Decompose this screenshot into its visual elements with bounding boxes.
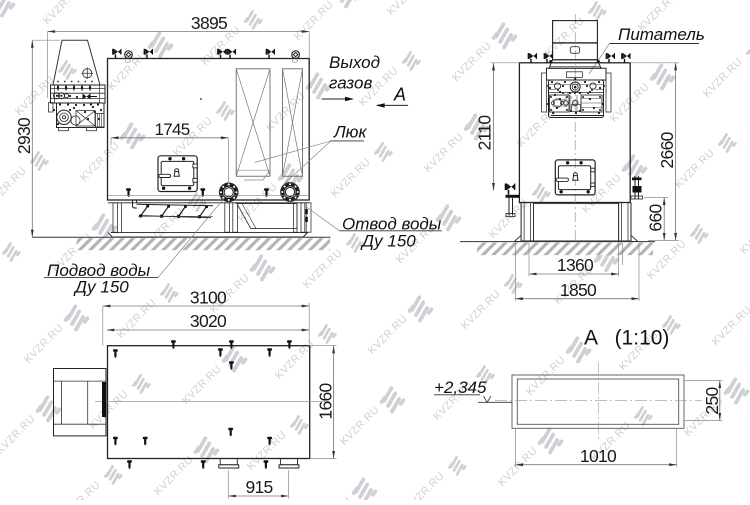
svg-text:Ду 150: Ду 150	[360, 232, 416, 251]
svg-text:660: 660	[646, 203, 666, 231]
svg-text:1660: 1660	[316, 382, 336, 419]
svg-text:2660: 2660	[657, 131, 677, 168]
svg-text:А: А	[393, 85, 406, 105]
svg-text:1010: 1010	[580, 446, 617, 466]
svg-text:+2,345: +2,345	[434, 378, 487, 397]
svg-text:2930: 2930	[14, 117, 34, 154]
svg-text:А: А	[584, 327, 598, 350]
svg-text:Ду 150: Ду 150	[73, 278, 129, 297]
svg-text:газов: газов	[329, 74, 372, 93]
svg-text:2110: 2110	[475, 115, 495, 151]
svg-text:3100: 3100	[190, 288, 227, 308]
svg-text:(1:10): (1:10)	[615, 327, 670, 350]
svg-text:Выход: Выход	[329, 53, 380, 72]
svg-text:3020: 3020	[190, 311, 227, 331]
svg-text:250: 250	[702, 386, 722, 414]
svg-text:Люк: Люк	[333, 123, 367, 142]
svg-text:1850: 1850	[560, 280, 597, 300]
svg-text:915: 915	[245, 477, 272, 497]
svg-text:1360: 1360	[557, 255, 594, 275]
svg-text:1745: 1745	[154, 120, 189, 139]
svg-text:3895: 3895	[191, 13, 227, 33]
svg-text:Питатель: Питатель	[618, 25, 705, 44]
